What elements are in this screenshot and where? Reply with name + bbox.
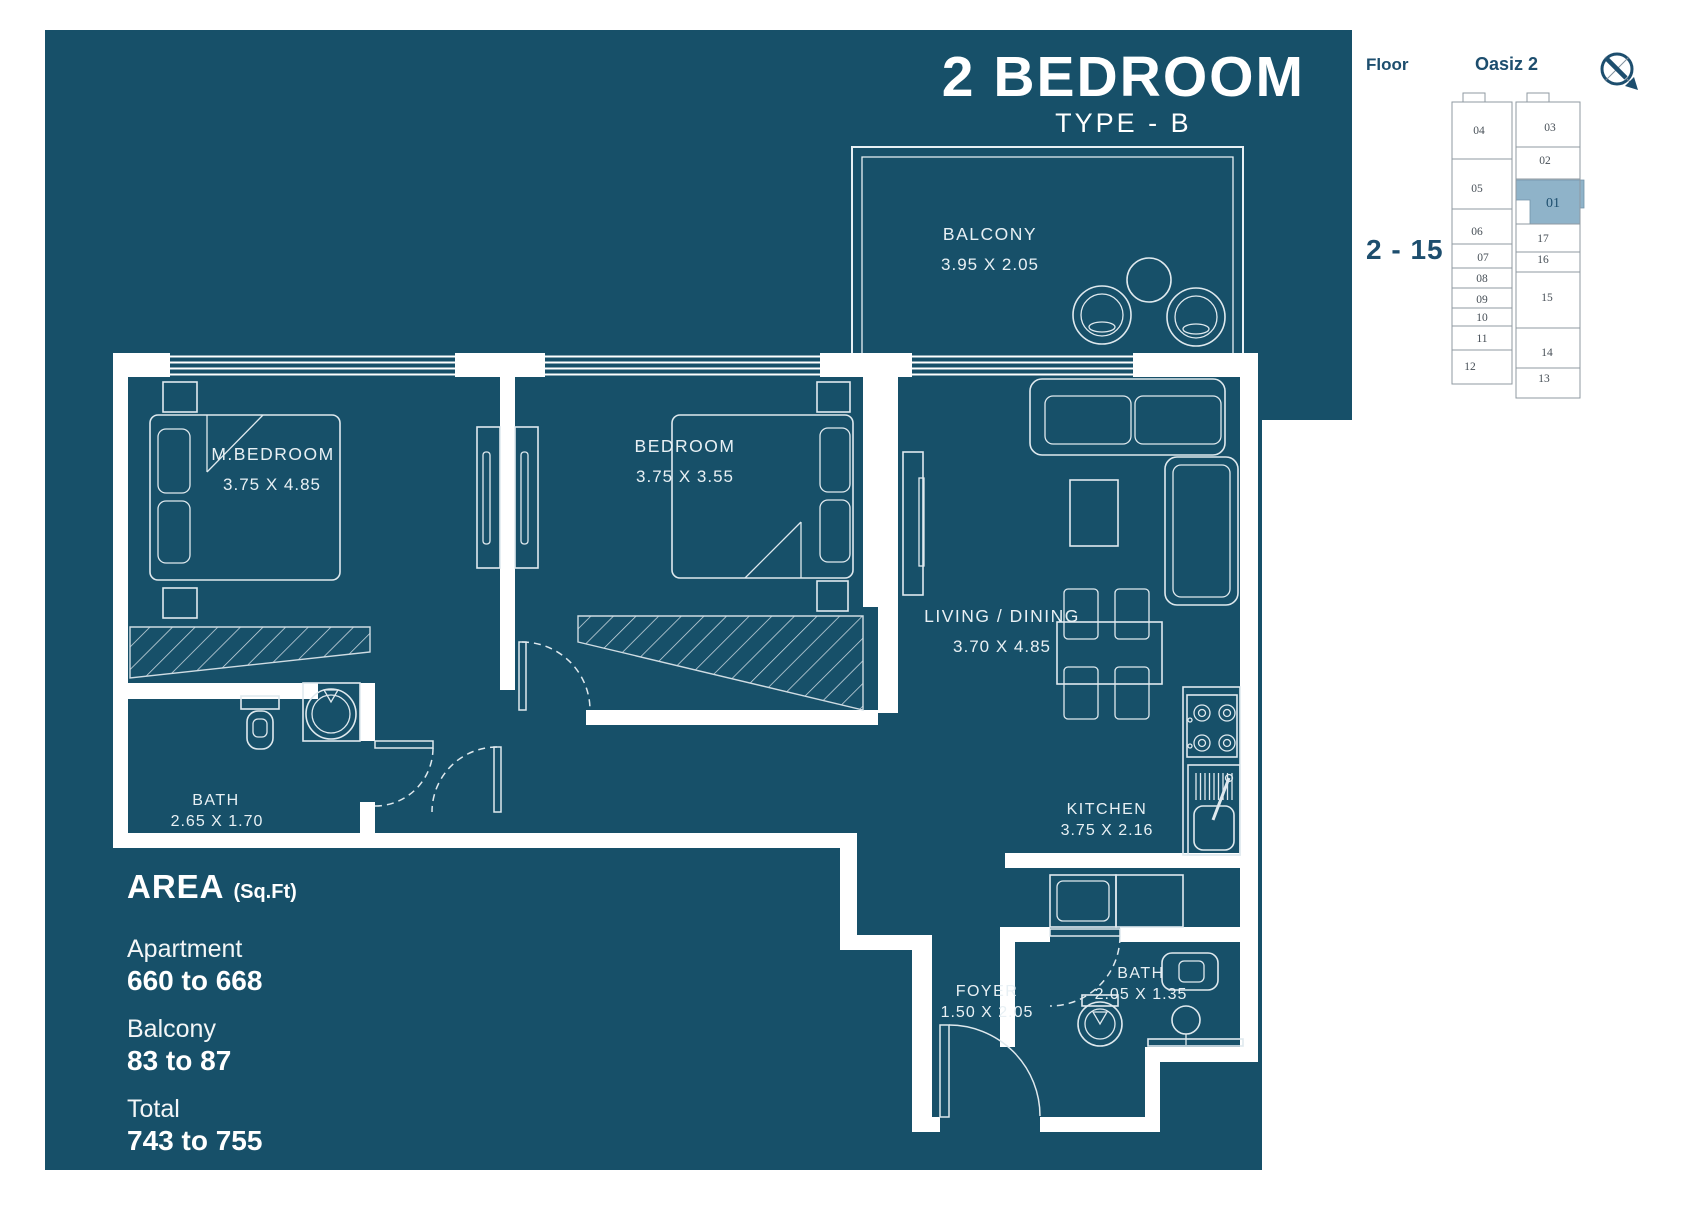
area-heading: AREA (Sq.Ft) xyxy=(127,868,297,906)
keyplan-unit: 04 xyxy=(1473,125,1485,137)
keyplan-unit: 05 xyxy=(1471,183,1483,195)
keyplan-unit: 17 xyxy=(1537,233,1549,245)
keyplan-unit: 07 xyxy=(1477,252,1489,264)
area-value: 83 to 87 xyxy=(127,1044,297,1077)
keyplan-unit: 06 xyxy=(1471,226,1483,238)
room-dims-master-bedroom: 3.75 X 4.85 xyxy=(223,475,321,494)
balcony-railing xyxy=(852,147,1243,353)
room-label-bath1: BATH xyxy=(192,792,239,809)
room-label-bedroom: BEDROOM xyxy=(635,436,736,456)
keyplan-unit: 16 xyxy=(1537,254,1549,266)
balcony-furniture xyxy=(1073,258,1225,346)
keyplan-unit: 02 xyxy=(1539,155,1551,167)
wardrobe-hatch-bedroom xyxy=(578,616,863,710)
floor-label: Floor xyxy=(1366,55,1409,75)
window-bedroom xyxy=(545,356,820,376)
area-label: Balcony xyxy=(127,1014,297,1044)
area-heading-text: AREA xyxy=(127,868,223,905)
room-dims-bath1: 2.65 X 1.70 xyxy=(171,813,264,830)
room-dims-bedroom: 3.75 X 3.55 xyxy=(636,467,734,486)
keyplan-unit: 14 xyxy=(1541,347,1553,359)
room-label-foyer: FOYER xyxy=(956,983,1019,1000)
keyplan-unit: 03 xyxy=(1544,122,1556,134)
page-subtitle: TYPE - B xyxy=(942,108,1305,139)
storage-units xyxy=(1050,875,1183,927)
area-heading-unit: (Sq.Ft) xyxy=(233,881,296,903)
room-label-living: LIVING / DINING xyxy=(924,606,1080,626)
room-dims-foyer: 1.50 X 2.05 xyxy=(941,1004,1034,1021)
keyplan-unit: 10 xyxy=(1476,312,1488,324)
keyplan-unit: 08 xyxy=(1476,273,1488,285)
project-name: Oasiz 2 xyxy=(1475,54,1538,75)
room-dims-kitchen: 3.75 X 2.16 xyxy=(1061,822,1154,839)
bedroom-furniture xyxy=(672,382,853,611)
window-master-bedroom xyxy=(170,356,455,376)
wardrobe-hatch-master xyxy=(130,627,370,678)
room-label-kitchen: KITCHEN xyxy=(1067,801,1148,818)
area-value: 660 to 668 xyxy=(127,964,297,997)
keyplan-unit: 11 xyxy=(1476,333,1487,345)
area-label: Total xyxy=(127,1094,297,1124)
area-item-total: Total 743 to 755 xyxy=(127,1094,297,1157)
keyplan-unit: 09 xyxy=(1476,294,1488,306)
keyplan-unit: 12 xyxy=(1464,361,1476,373)
room-dims-balcony: 3.95 X 2.05 xyxy=(941,255,1039,274)
title-block: 2 BEDROOM TYPE - B xyxy=(942,48,1305,139)
area-summary: AREA (Sq.Ft) Apartment 660 to 668 Balcon… xyxy=(127,868,297,1174)
area-item-balcony: Balcony 83 to 87 xyxy=(127,1014,297,1077)
kitchen-counter xyxy=(1183,687,1240,855)
room-label-bath2: BATH xyxy=(1117,965,1164,982)
area-item-apartment: Apartment 660 to 668 xyxy=(127,934,297,997)
keyplan-unit: 13 xyxy=(1538,373,1550,385)
area-value: 743 to 755 xyxy=(127,1124,297,1157)
living-furniture xyxy=(903,379,1238,605)
keyplan-unit: 15 xyxy=(1541,292,1553,304)
keyplan-unit-highlighted: 01 xyxy=(1546,196,1560,211)
room-dims-bath2: 2.05 X 1.35 xyxy=(1095,986,1188,1003)
page-title: 2 BEDROOM xyxy=(942,48,1305,106)
window-living xyxy=(912,356,1133,376)
area-label: Apartment xyxy=(127,934,297,964)
building-keyplan: 04 05 06 07 08 09 10 11 12 03 02 01 17 1… xyxy=(1432,88,1602,418)
master-bedroom-furniture xyxy=(150,382,538,618)
room-label-master-bedroom: M.BEDROOM xyxy=(211,444,334,464)
room-label-balcony: BALCONY xyxy=(943,224,1037,244)
room-dims-living: 3.70 X 4.85 xyxy=(953,637,1051,656)
